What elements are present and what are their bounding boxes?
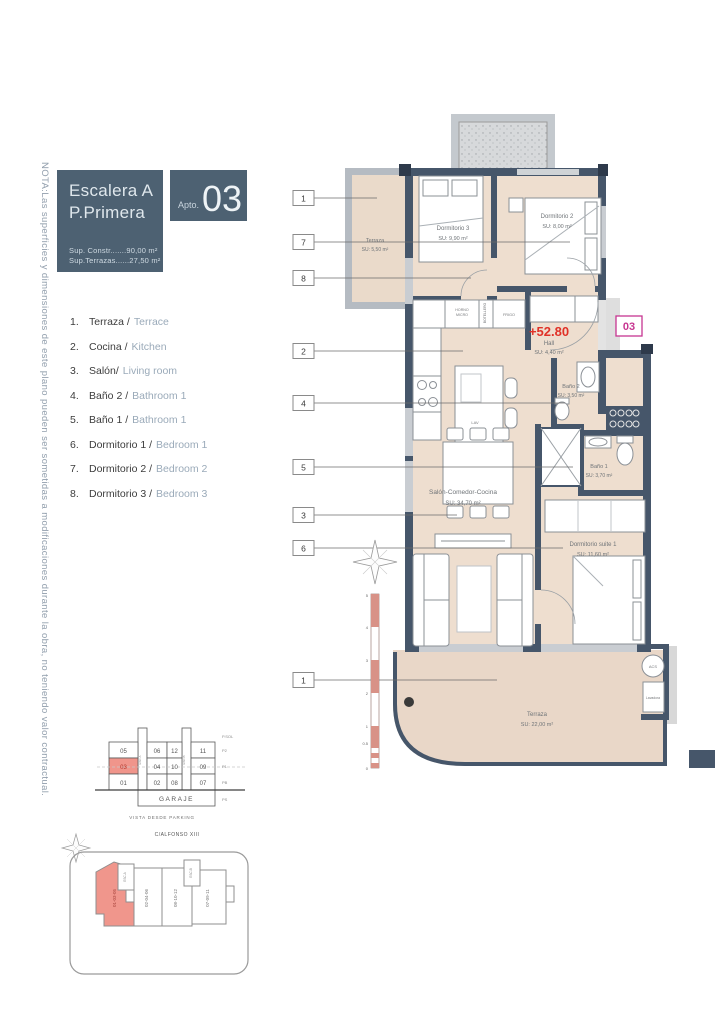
svg-text:FRIGO: FRIGO (503, 313, 515, 317)
svg-text:05: 05 (120, 749, 127, 755)
compass-icon (353, 540, 397, 584)
site-compass-icon (62, 834, 90, 862)
svg-text:SU: 3,70 m²: SU: 3,70 m² (586, 473, 613, 479)
site-stair-a: ESC.A (123, 871, 127, 881)
svg-text:P2: P2 (222, 748, 228, 753)
svg-text:PB: PB (222, 780, 228, 785)
svg-text:07-09-11: 07-09-11 (205, 889, 210, 907)
room-label: Salón-Comedor-Cocina (429, 489, 497, 496)
floor-plan: Terraza SU: 5,50 m² Dormitorio 3 SU: 9,9… (285, 110, 715, 780)
svg-text:SU: 4,40 m²: SU: 4,40 m² (534, 350, 564, 356)
callout-badges: 1 7 8 2 4 5 3 6 1 (293, 191, 314, 688)
svg-text:07: 07 (200, 781, 207, 787)
callout-6: 6 (301, 544, 306, 554)
svg-text:08-10-12: 08-10-12 (173, 888, 178, 907)
title-block: Escalera A P.Primera Sup. Constr.......9… (57, 170, 163, 272)
scale-bar: 5 4 3 2 1 0.5 0 (362, 593, 379, 771)
svg-text:08: 08 (171, 781, 178, 787)
callout-3: 3 (301, 511, 306, 521)
svg-text:SU: 5,50 m²: SU: 5,50 m² (362, 247, 389, 253)
svg-text:09: 09 (200, 765, 207, 771)
terrace-area: Sup.Terrazas......27,50 m² (69, 256, 163, 266)
svg-text:02-04-06: 02-04-06 (144, 888, 149, 907)
svg-text:SU: 9,90 m²: SU: 9,90 m² (438, 236, 468, 242)
site-plan: C/ALFONSO XIII 01-03-05 02-04-06 08-10-1… (52, 824, 262, 996)
svg-text:01: 01 (120, 781, 127, 787)
svg-text:SU: 22,00 m²: SU: 22,00 m² (521, 722, 554, 728)
stair-b-label: ESC.B (182, 755, 186, 764)
room-label: Baño 1 (590, 464, 607, 470)
svg-text:P1: P1 (222, 764, 228, 769)
garage-label: GARAJE (159, 796, 194, 803)
callout-1b: 1 (301, 676, 306, 686)
building-stack-diagram: 05061211 03041009 01020807 GARAJE ESC.A … (95, 722, 255, 826)
svg-text:12: 12 (171, 749, 178, 755)
unit-number-badge: 03 (616, 316, 642, 336)
svg-text:0: 0 (366, 766, 369, 771)
svg-text:Lavadora: Lavadora (646, 696, 660, 700)
room-label: Baño 2 (562, 384, 579, 390)
svg-text:ACS: ACS (649, 664, 658, 669)
room-label: Dormitorio suite 1 (569, 542, 617, 548)
terrace-column (404, 697, 414, 707)
svg-text:BOTELLERO: BOTELLERO (483, 302, 487, 323)
terrace-bottom-floor (393, 650, 667, 766)
svg-text:SU: 8,00 m²: SU: 8,00 m² (542, 224, 572, 230)
plan-sheet: { "note": "NOTA:Las superficies y dimens… (0, 0, 724, 1024)
apto-label: Apto. (178, 200, 199, 210)
callout-7: 7 (301, 238, 306, 248)
room-label: Terraza (527, 712, 548, 718)
svg-text:1: 1 (366, 724, 369, 729)
svg-text:02: 02 (154, 781, 161, 787)
stack-caption: VISTA DESDE PARKING (129, 815, 195, 820)
built-area: Sup. Constr.......90,00 m² (69, 246, 163, 256)
level-mark: +52.80 (529, 324, 569, 339)
svg-text:04: 04 (154, 765, 161, 771)
callout-1: 1 (301, 194, 306, 204)
stair-title: Escalera A (69, 180, 163, 202)
svg-text:SU: 3,50 m²: SU: 3,50 m² (558, 393, 585, 399)
floor-level-labels: P.SOL P2 P1 PB PS (222, 734, 234, 802)
room-label: Dormitorio 3 (437, 226, 470, 232)
legend-item: 1.Terraza /Terrace (70, 316, 280, 341)
legend-item: 5.Baño 1 /Bathroom 1 (70, 414, 280, 439)
stair-a-label: ESC.A (138, 755, 142, 764)
svg-text:11: 11 (200, 749, 207, 755)
callout-4: 4 (301, 399, 306, 409)
street-label: C/ALFONSO XIII (155, 832, 200, 838)
callout-8: 8 (301, 274, 306, 284)
scale-labels: 5 4 3 2 1 0.5 0 (362, 593, 368, 771)
svg-text:PS: PS (222, 797, 228, 802)
svg-text:06: 06 (154, 749, 161, 755)
room-label: Hall (544, 341, 554, 347)
svg-text:4: 4 (366, 625, 369, 630)
callout-5: 5 (301, 463, 306, 473)
svg-text:2: 2 (366, 691, 369, 696)
svg-text:P.SOL: P.SOL (222, 734, 234, 739)
svg-text:3: 3 (366, 658, 369, 663)
room-label: Terraza (366, 238, 385, 244)
highlighted-unit: 03 (120, 765, 127, 771)
legend-item: 3.Salón/Living room (70, 365, 280, 390)
callout-2: 2 (301, 347, 306, 357)
svg-text:01-03-05: 01-03-05 (112, 888, 117, 907)
floor-title: P.Primera (69, 202, 163, 224)
neighbour-terrace (451, 114, 555, 176)
room-legend: 1.Terraza /Terrace 2.Cocina /Kitchen 3.S… (70, 316, 280, 512)
svg-text:SU: 34,70 m²: SU: 34,70 m² (445, 501, 480, 507)
legend-item: 8.Dormitorio 3 /Bedroom 3 (70, 488, 280, 513)
site-stair-b: ESC.B (189, 868, 193, 878)
svg-text:MICRO: MICRO (456, 313, 468, 317)
svg-text:SU: 11,60 m²: SU: 11,60 m² (577, 552, 609, 558)
apto-number: 03 (202, 182, 242, 216)
svg-text:LAV: LAV (471, 420, 479, 425)
legend-item: 6.Dormitorio 1 /Bedroom 1 (70, 439, 280, 464)
svg-text:10: 10 (171, 765, 178, 771)
apartment-number-block: Apto. 03 (170, 170, 247, 221)
legend-item: 2.Cocina /Kitchen (70, 341, 280, 366)
legend-item: 4.Baño 2 /Bathroom 1 (70, 390, 280, 415)
disclaimer-note: NOTA:Las superficies y dimensiones de es… (34, 162, 50, 862)
svg-text:HORNO: HORNO (455, 308, 469, 312)
room-label: Dormitorio 2 (541, 214, 574, 220)
svg-text:0.5: 0.5 (362, 741, 368, 746)
legend-item: 7.Dormitorio 2 /Bedroom 2 (70, 463, 280, 488)
svg-text:03: 03 (623, 321, 635, 333)
svg-text:5: 5 (366, 593, 369, 598)
